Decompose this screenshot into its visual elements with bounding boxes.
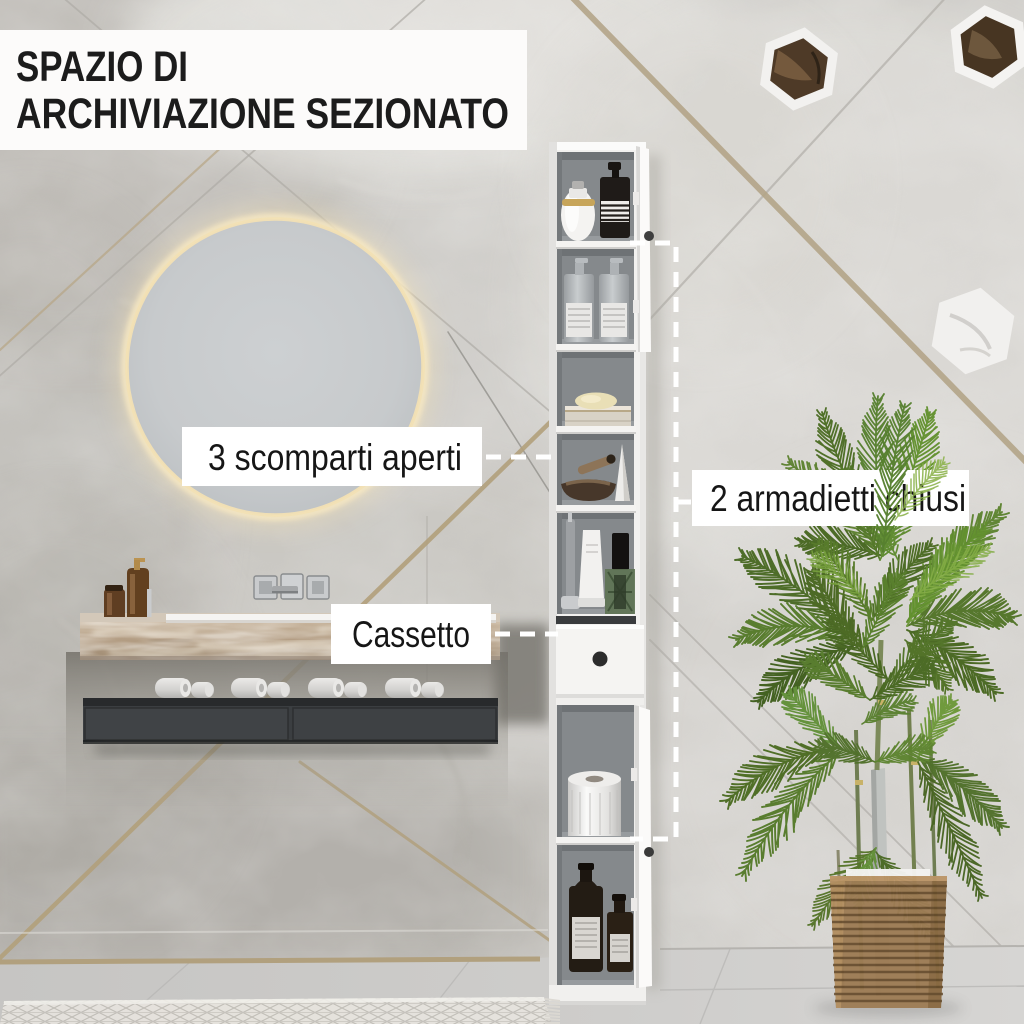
svg-text:SPAZIO DI: SPAZIO DI — [16, 43, 188, 91]
svg-text:3 scomparti aperti: 3 scomparti aperti — [208, 437, 462, 478]
svg-text:Cassetto: Cassetto — [352, 614, 470, 655]
svg-text:ARCHIVIAZIONE SEZIONATO: ARCHIVIAZIONE SEZIONATO — [16, 90, 509, 138]
